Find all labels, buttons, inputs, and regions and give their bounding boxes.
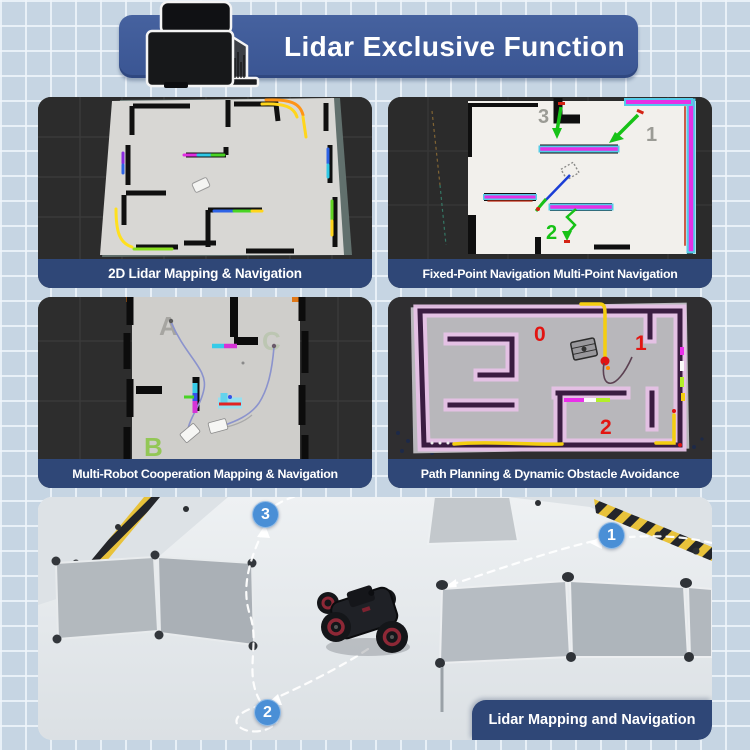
photo-lidar-navigation: 1 2 3 Lidar Mapping and Navigation xyxy=(38,497,712,740)
panel-2d-lidar-mapping: 2D Lidar Mapping & Navigation xyxy=(38,97,372,288)
rviz-map-view: 0 1 2 xyxy=(388,297,712,459)
back-cube-panel xyxy=(428,497,518,544)
zone-label-0: 0 xyxy=(534,323,546,346)
rviz-map-view xyxy=(38,97,372,259)
robot-label-c: C xyxy=(262,326,281,356)
zone-label-1: 1 xyxy=(635,332,647,355)
robot-label-a: A xyxy=(159,311,178,341)
lidar-base-foot xyxy=(164,82,188,88)
panel-caption: 2D Lidar Mapping & Navigation xyxy=(38,259,372,288)
panel-multi-robot-cooperation: A C B Mult xyxy=(38,297,372,488)
waypoint-label-3: 3 xyxy=(538,106,549,128)
robot-icon xyxy=(570,338,597,361)
waypoint-badge-3: 3 xyxy=(252,501,279,528)
rviz-map-view: A C B xyxy=(38,297,372,459)
waypoint-label-1: 1 xyxy=(646,124,657,146)
robot-label-b: B xyxy=(144,432,163,459)
panel-path-planning: 0 1 2 Path Planning & Dynamic Obstacle A… xyxy=(388,297,712,488)
waypoint-label-2: 2 xyxy=(546,222,557,244)
panel-caption: Multi-Robot Cooperation Mapping & Naviga… xyxy=(38,459,372,488)
photo-caption: Lidar Mapping and Navigation xyxy=(472,700,712,740)
lidar-sensor-icon xyxy=(134,0,268,94)
panel-fixed-point-navigation: 3 1 2 Fixed-Point Navigation Multi-Point… xyxy=(388,97,712,288)
waypoint-badge-2: 2 xyxy=(254,699,281,726)
zone-label-2: 2 xyxy=(600,416,612,439)
panel-caption: Path Planning & Dynamic Obstacle Avoidan… xyxy=(388,459,712,488)
marketing-page: Lidar Exclusive Function xyxy=(0,0,750,750)
rviz-map-view: 3 1 2 xyxy=(388,97,712,259)
page-title: Lidar Exclusive Function xyxy=(284,31,625,63)
waypoint-badge-1: 1 xyxy=(598,522,625,549)
panel-caption: Fixed-Point Navigation Multi-Point Navig… xyxy=(388,259,712,288)
